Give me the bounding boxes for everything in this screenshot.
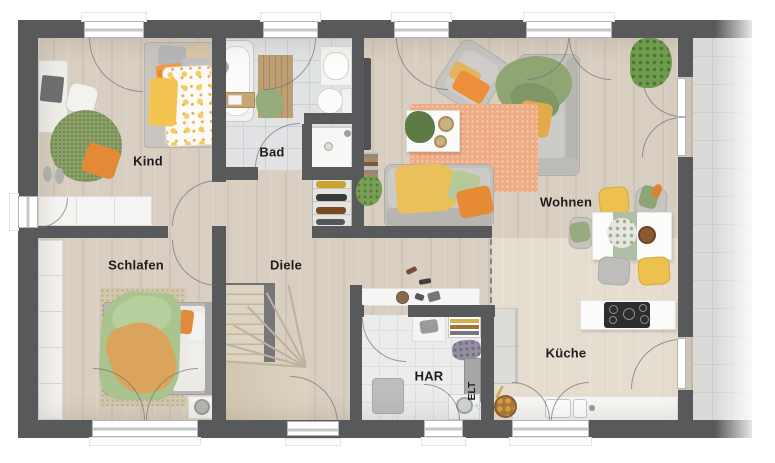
room-label-har: HAR (415, 370, 444, 383)
door-step (285, 438, 341, 446)
open-passage-dashed-line (490, 239, 492, 303)
terrace-door-wohnen-b (677, 117, 686, 156)
room-label-bad: Bad (259, 146, 284, 159)
wall-kind-bad (212, 38, 226, 182)
wall-bad-wohnen (352, 38, 364, 238)
window-kind (84, 21, 144, 38)
wall-har-right (481, 305, 494, 420)
terrace-door-kueche (677, 338, 686, 389)
wall-right-lower (678, 390, 693, 420)
room-label-kueche: Küche (546, 347, 587, 360)
wall-right-mid (678, 157, 693, 337)
wall-har-top-left (350, 305, 364, 317)
floor-plan: Kind Bad Wohnen Schlafen Diele HAR ELT K… (0, 0, 775, 463)
terrace-door-wohnen-a (677, 78, 686, 117)
window-schlafen (92, 420, 198, 437)
entry-door-leaf (287, 421, 339, 436)
wall-bad-bottom-left (212, 167, 258, 180)
wall-right-upper (678, 38, 693, 77)
room-label-wohnen: Wohnen (540, 196, 592, 209)
wall-bad-stub-v (302, 124, 312, 167)
room-label-diele: Diele (270, 259, 302, 272)
room-label-schlafen: Schlafen (108, 259, 164, 272)
window-wohnen-2 (526, 21, 612, 38)
room-label-kind: Kind (133, 155, 163, 168)
window-sill (509, 437, 592, 446)
window-har (424, 420, 463, 437)
window-wohnen-1 (394, 21, 449, 38)
wall-wohnen-bottom (312, 226, 492, 238)
window-bad (263, 21, 318, 38)
window-sill (89, 437, 201, 446)
window-kueche (512, 420, 589, 437)
room-label-elt: ELT (468, 382, 478, 401)
window-kind-left (18, 196, 38, 228)
window-sill (421, 437, 466, 446)
right-fade (715, 0, 775, 463)
